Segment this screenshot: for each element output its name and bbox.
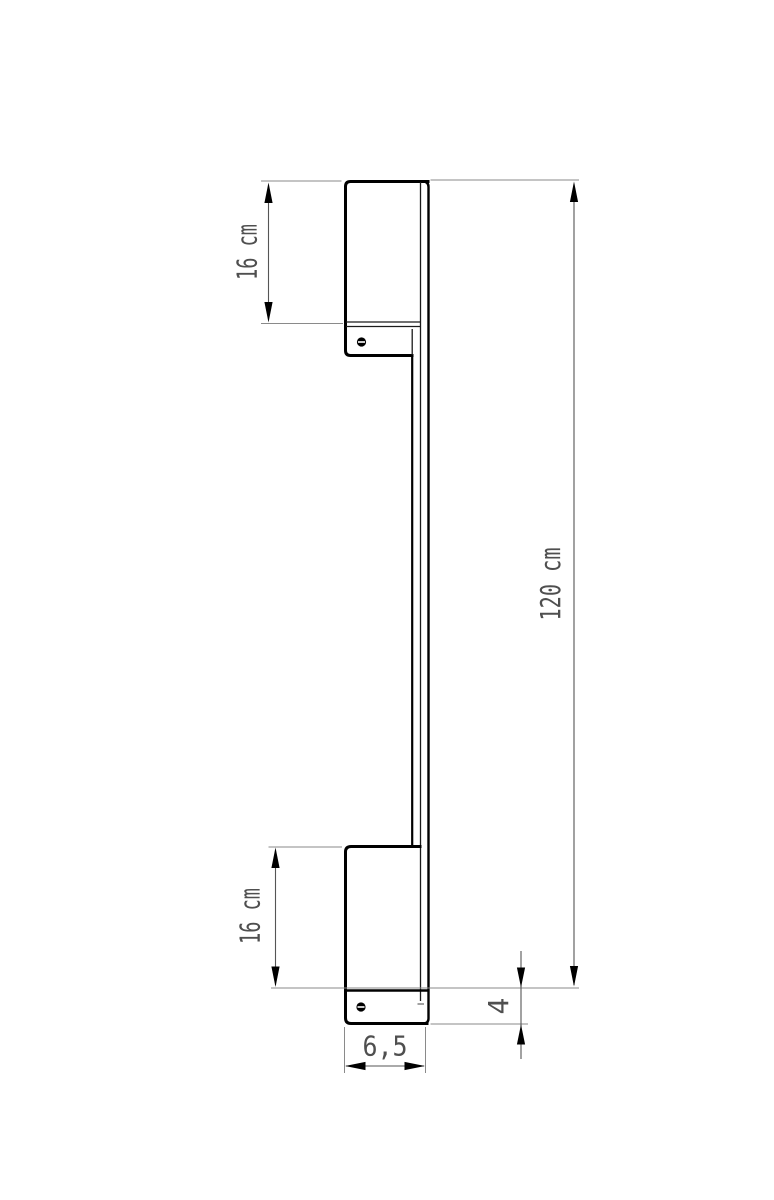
dim-label-overall-height: 120 cm	[534, 548, 567, 621]
dimension-base-width: 6,5	[345, 1027, 426, 1073]
lamp-body	[346, 182, 429, 1024]
arrowhead-up	[570, 182, 578, 203]
arrowhead-up	[271, 848, 279, 869]
arrowhead-down	[517, 968, 525, 988]
lamp-dimension-drawing: 16 cm 120 cm 16 cm 4	[0, 0, 774, 1200]
arrowhead-up	[264, 183, 272, 204]
dim-label-top-bracket: 16 cm	[231, 224, 264, 280]
arrowhead-left	[345, 1062, 366, 1070]
dimension-top-bracket: 16 cm	[231, 181, 344, 324]
arrowhead-up	[517, 1025, 525, 1045]
dim-label-base-width: 6,5	[363, 1030, 408, 1063]
top-bracket-outline	[346, 182, 429, 356]
bottom-bracket-outline	[346, 847, 428, 1024]
technical-drawing-canvas: 16 cm 120 cm 16 cm 4	[0, 0, 774, 1200]
arrowhead-down	[264, 302, 272, 323]
screw-bottom	[356, 1002, 365, 1011]
arrowhead-down	[570, 966, 578, 987]
dim-label-end-cap: 4	[482, 998, 515, 1015]
dimension-end-cap: 4	[431, 951, 529, 1059]
arrowhead-right	[405, 1062, 426, 1070]
dimension-bottom-bracket: 16 cm	[234, 847, 343, 987]
dim-label-bottom-bracket: 16 cm	[234, 888, 267, 944]
lamp-tube-right-edge	[423, 182, 429, 1024]
dimension-overall-height: 120 cm	[271, 180, 579, 988]
arrowhead-down	[271, 967, 279, 988]
screw-top	[357, 337, 366, 346]
